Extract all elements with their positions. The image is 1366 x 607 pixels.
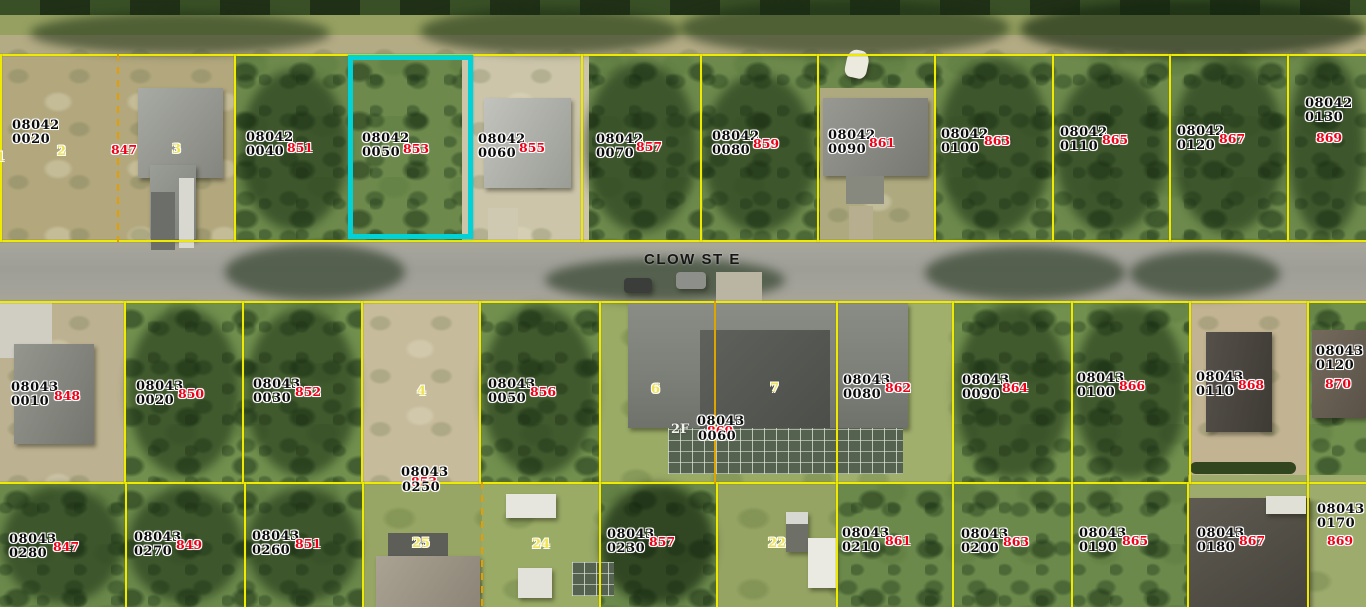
parcel-id-label: 080430260	[252, 530, 300, 558]
parcel-address: 855	[519, 141, 545, 154]
parcel-id-label: 080430120	[1316, 345, 1364, 373]
parcel-line	[124, 301, 126, 484]
parcel-id-label: 080430010	[11, 381, 59, 409]
parcel-address: 863	[1003, 535, 1029, 548]
parcel-id-label: 080430170	[1317, 503, 1365, 531]
tree-shadow-on-road	[225, 244, 405, 300]
parcel-id-label: 080420130	[1305, 97, 1353, 125]
parcel-line	[244, 482, 246, 607]
parcel-id-label: 08043	[401, 466, 449, 480]
house-roof	[376, 556, 480, 607]
parcel-id-label: 080430180	[1197, 527, 1245, 555]
lot-number: 3	[172, 142, 181, 157]
house-roof-wing	[846, 176, 884, 204]
driveway	[488, 208, 518, 242]
parcel-line	[1071, 301, 1073, 484]
lot-number: 7	[770, 381, 779, 396]
parcel-line	[599, 301, 601, 484]
car	[676, 272, 706, 289]
parcel-address: 851	[287, 141, 313, 154]
parcel-address: 857	[649, 535, 675, 548]
parcel-id-label: 080430280	[9, 533, 57, 561]
parcel-line	[836, 301, 838, 484]
parcel-line	[716, 482, 718, 607]
parcel-line	[1169, 54, 1171, 242]
parcel-address: 851	[295, 537, 321, 550]
parcel-address: 857	[636, 140, 662, 153]
parcel-id-label: 080420110	[1060, 126, 1108, 154]
walkway	[179, 178, 194, 248]
trailer	[808, 538, 836, 588]
screen-structure	[572, 562, 614, 596]
parcel-line	[952, 301, 954, 484]
parcel-address: 856	[530, 385, 556, 398]
parcel-id-label: 080430050	[488, 378, 536, 406]
lot-split-line	[714, 301, 716, 484]
parcel-line	[1307, 482, 1309, 607]
parcel-line	[0, 301, 1366, 303]
parcel-line	[599, 482, 601, 607]
aerial-map[interactable]: CLOW ST E 080420020 847 080420040 851 08…	[0, 0, 1366, 607]
driveway-apron	[716, 272, 762, 302]
tree-canopy	[1288, 56, 1364, 236]
parcel-address: 861	[869, 136, 895, 149]
parcel-address: 859	[753, 137, 779, 150]
parcel-line	[242, 301, 244, 484]
parcel-id-label: 080430210	[842, 527, 890, 555]
parcel-id-label: 080420100	[941, 128, 989, 156]
lot-number: 25	[412, 536, 430, 551]
lot-number: 2	[57, 144, 66, 159]
lot-number: 1	[0, 150, 5, 165]
parcel-line	[836, 482, 838, 607]
parcel-line	[581, 54, 583, 242]
parcel-line	[952, 482, 954, 607]
parcel-address: 868	[1238, 378, 1264, 391]
parcel-id-label: 080430200	[961, 528, 1009, 556]
lot-number: 4	[417, 384, 426, 399]
parcel-line	[700, 54, 702, 242]
parcel-id-label: 080420020	[12, 119, 60, 147]
tree-shadow	[680, 0, 1010, 56]
street-name-label: CLOW ST E	[644, 251, 741, 268]
tree-shadow	[420, 8, 680, 54]
shed-roof	[506, 494, 556, 518]
driveway	[849, 206, 873, 242]
shed-roof	[1266, 496, 1306, 514]
parcel-address: 852	[295, 385, 321, 398]
parcel-id-label: 080430110	[1196, 371, 1244, 399]
parcel-line	[0, 54, 2, 242]
parcel-line	[234, 54, 236, 242]
parcel-line	[479, 301, 481, 484]
parcel-line	[934, 54, 936, 242]
parcel-id-label: 080430080	[843, 374, 891, 402]
parcel-address: 849	[176, 538, 202, 551]
parcel-line	[1187, 482, 1189, 607]
lot-number: 22	[768, 536, 786, 551]
parcel-address: 861	[885, 534, 911, 547]
hedge	[1190, 462, 1296, 474]
parcel-id-label: 080430100	[1077, 372, 1125, 400]
parcel-id-label: 080430190	[1079, 527, 1127, 555]
parcel-id-label: 080430020	[136, 380, 184, 408]
parcel-address: 865	[1102, 133, 1128, 146]
parcel-address: 862	[885, 381, 911, 394]
tree-shadow-on-road	[925, 246, 1125, 300]
parcel-line	[362, 482, 364, 607]
parcel-address: 863	[984, 134, 1010, 147]
parcel-address: 850	[178, 387, 204, 400]
parcel-id-label: 080430030	[253, 378, 301, 406]
tree-shadow	[30, 12, 330, 54]
parcel-line	[1287, 54, 1289, 242]
tree-canopy	[1020, 0, 1366, 58]
parcel-id-label: 08043	[697, 415, 745, 429]
parcel-line	[361, 301, 363, 484]
parcel-line	[1307, 301, 1309, 484]
parcel-address: 869	[1316, 131, 1342, 144]
parcel-line	[0, 54, 1366, 56]
parcel-id-label: 080420120	[1177, 125, 1225, 153]
parcel-line	[817, 54, 819, 242]
parcel-id-label: 080430230	[607, 528, 655, 556]
truck	[786, 512, 808, 552]
parcel-address: 867	[1219, 132, 1245, 145]
shed-roof	[518, 568, 552, 598]
lot-number: 6	[651, 382, 660, 397]
parcel-id-label: 0250	[402, 481, 440, 495]
lot-split-line	[481, 482, 483, 607]
parcel-line	[1189, 301, 1191, 484]
parcel-address: 847	[111, 143, 137, 156]
parcel-address: 848	[54, 389, 80, 402]
tree-shadow-on-road	[1130, 250, 1280, 298]
parcel-address: 853	[403, 142, 429, 155]
parcel-id-label: 0060	[698, 430, 736, 444]
lot-number: 24	[532, 537, 550, 552]
parcel-address: 865	[1122, 534, 1148, 547]
parcel-line	[1071, 482, 1073, 607]
parcel-line	[0, 482, 1366, 484]
parcel-line	[0, 240, 1366, 242]
parcel-address: 864	[1002, 381, 1028, 394]
parcel-address: 869	[1327, 534, 1353, 547]
parcel-id-label: 080430270	[134, 531, 182, 559]
parcel-line	[1052, 54, 1054, 242]
car	[624, 278, 652, 293]
parcel-line	[125, 482, 127, 607]
parcel-address: 867	[1239, 534, 1265, 547]
parcel-address: 847	[53, 540, 79, 553]
lot-number: 2F	[671, 422, 689, 437]
parcel-address: 870	[1325, 377, 1351, 390]
parcel-address: 866	[1119, 379, 1145, 392]
